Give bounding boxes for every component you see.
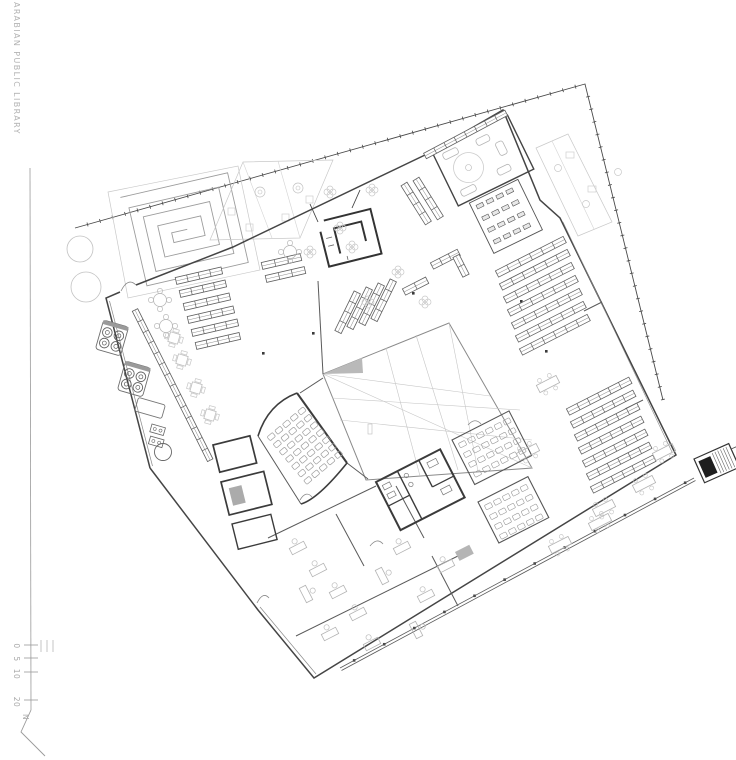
office-desk (326, 579, 346, 598)
site-wall-south (340, 478, 696, 671)
door-arc (468, 421, 481, 425)
lounge-chair (392, 266, 404, 278)
lounge-chair (366, 184, 378, 196)
restroom-core (376, 449, 465, 530)
office-desk (414, 583, 434, 602)
lounge-chair (346, 241, 358, 253)
north-label: N (21, 714, 30, 720)
meeting-room (221, 471, 272, 515)
office-desk (286, 535, 306, 554)
kitchen-counter (146, 424, 167, 448)
office-desk (318, 621, 338, 640)
scale-bar: 0 5 10 20 (12, 640, 53, 707)
reading-table (534, 371, 562, 397)
reading-table (514, 439, 542, 465)
column (545, 350, 548, 353)
office-desk (375, 564, 394, 584)
bookshelf-row (183, 293, 230, 310)
door-arc (257, 595, 269, 603)
bookshelf-row (179, 280, 226, 297)
meeting-room (213, 436, 257, 472)
scale-label-0: 0 (12, 643, 21, 648)
rooms-layer (213, 115, 549, 561)
cafe-booth (95, 320, 128, 356)
bookshelf-row (195, 332, 240, 349)
bookshelf-row (175, 267, 222, 284)
bookshelf-row (191, 319, 238, 336)
tree-canopy (71, 272, 101, 302)
spiral-garden (120, 173, 248, 287)
page-title: ARABIAN PUBLIC LIBRARY (12, 2, 21, 135)
bookshelf-row (453, 254, 469, 277)
scale-label-20: 20 (12, 697, 21, 708)
classroom (452, 411, 532, 485)
office-desk (390, 535, 410, 554)
computer-room (469, 179, 542, 253)
square-table (199, 404, 221, 426)
scale-label-5: 5 (12, 656, 21, 661)
door-arc (121, 282, 136, 291)
office-desk (346, 601, 366, 620)
round-table (148, 288, 171, 311)
auditorium-seats (267, 407, 343, 485)
tree-canopy (67, 236, 93, 262)
stair-elevator (694, 437, 736, 483)
office-desk (434, 553, 454, 572)
office-desk (409, 618, 428, 638)
meeting-room (232, 514, 277, 549)
bookshelf-row (265, 267, 306, 283)
shaded-triangle (323, 358, 363, 374)
door-arc (370, 541, 383, 546)
column (262, 352, 265, 355)
square-table (185, 377, 207, 399)
sheet-margin: ARABIAN PUBLIC LIBRARY 0 5 10 20 N (12, 2, 53, 756)
column (312, 332, 315, 335)
classroom (478, 477, 549, 543)
lounge-chair (304, 246, 316, 258)
shelves-layer (132, 110, 656, 493)
entry-vestibule (318, 209, 382, 267)
lounge-chair (324, 186, 336, 198)
scale-label-10: 10 (12, 669, 21, 680)
bookshelf-row (261, 254, 302, 270)
floor-plan-sheet: ARABIAN PUBLIC LIBRARY 0 5 10 20 N (0, 0, 736, 760)
square-table (163, 327, 185, 349)
bookshelf-row (402, 277, 428, 295)
office-desk (299, 582, 318, 602)
margin-rule (30, 168, 31, 710)
round-booth (155, 444, 172, 461)
square-table (171, 349, 193, 371)
north-arrow: N (21, 710, 45, 756)
office-desk (306, 557, 326, 576)
cafe-booth (117, 361, 150, 397)
bookshelf-row (187, 306, 234, 323)
lounge-chair (419, 296, 431, 308)
column (412, 292, 415, 295)
